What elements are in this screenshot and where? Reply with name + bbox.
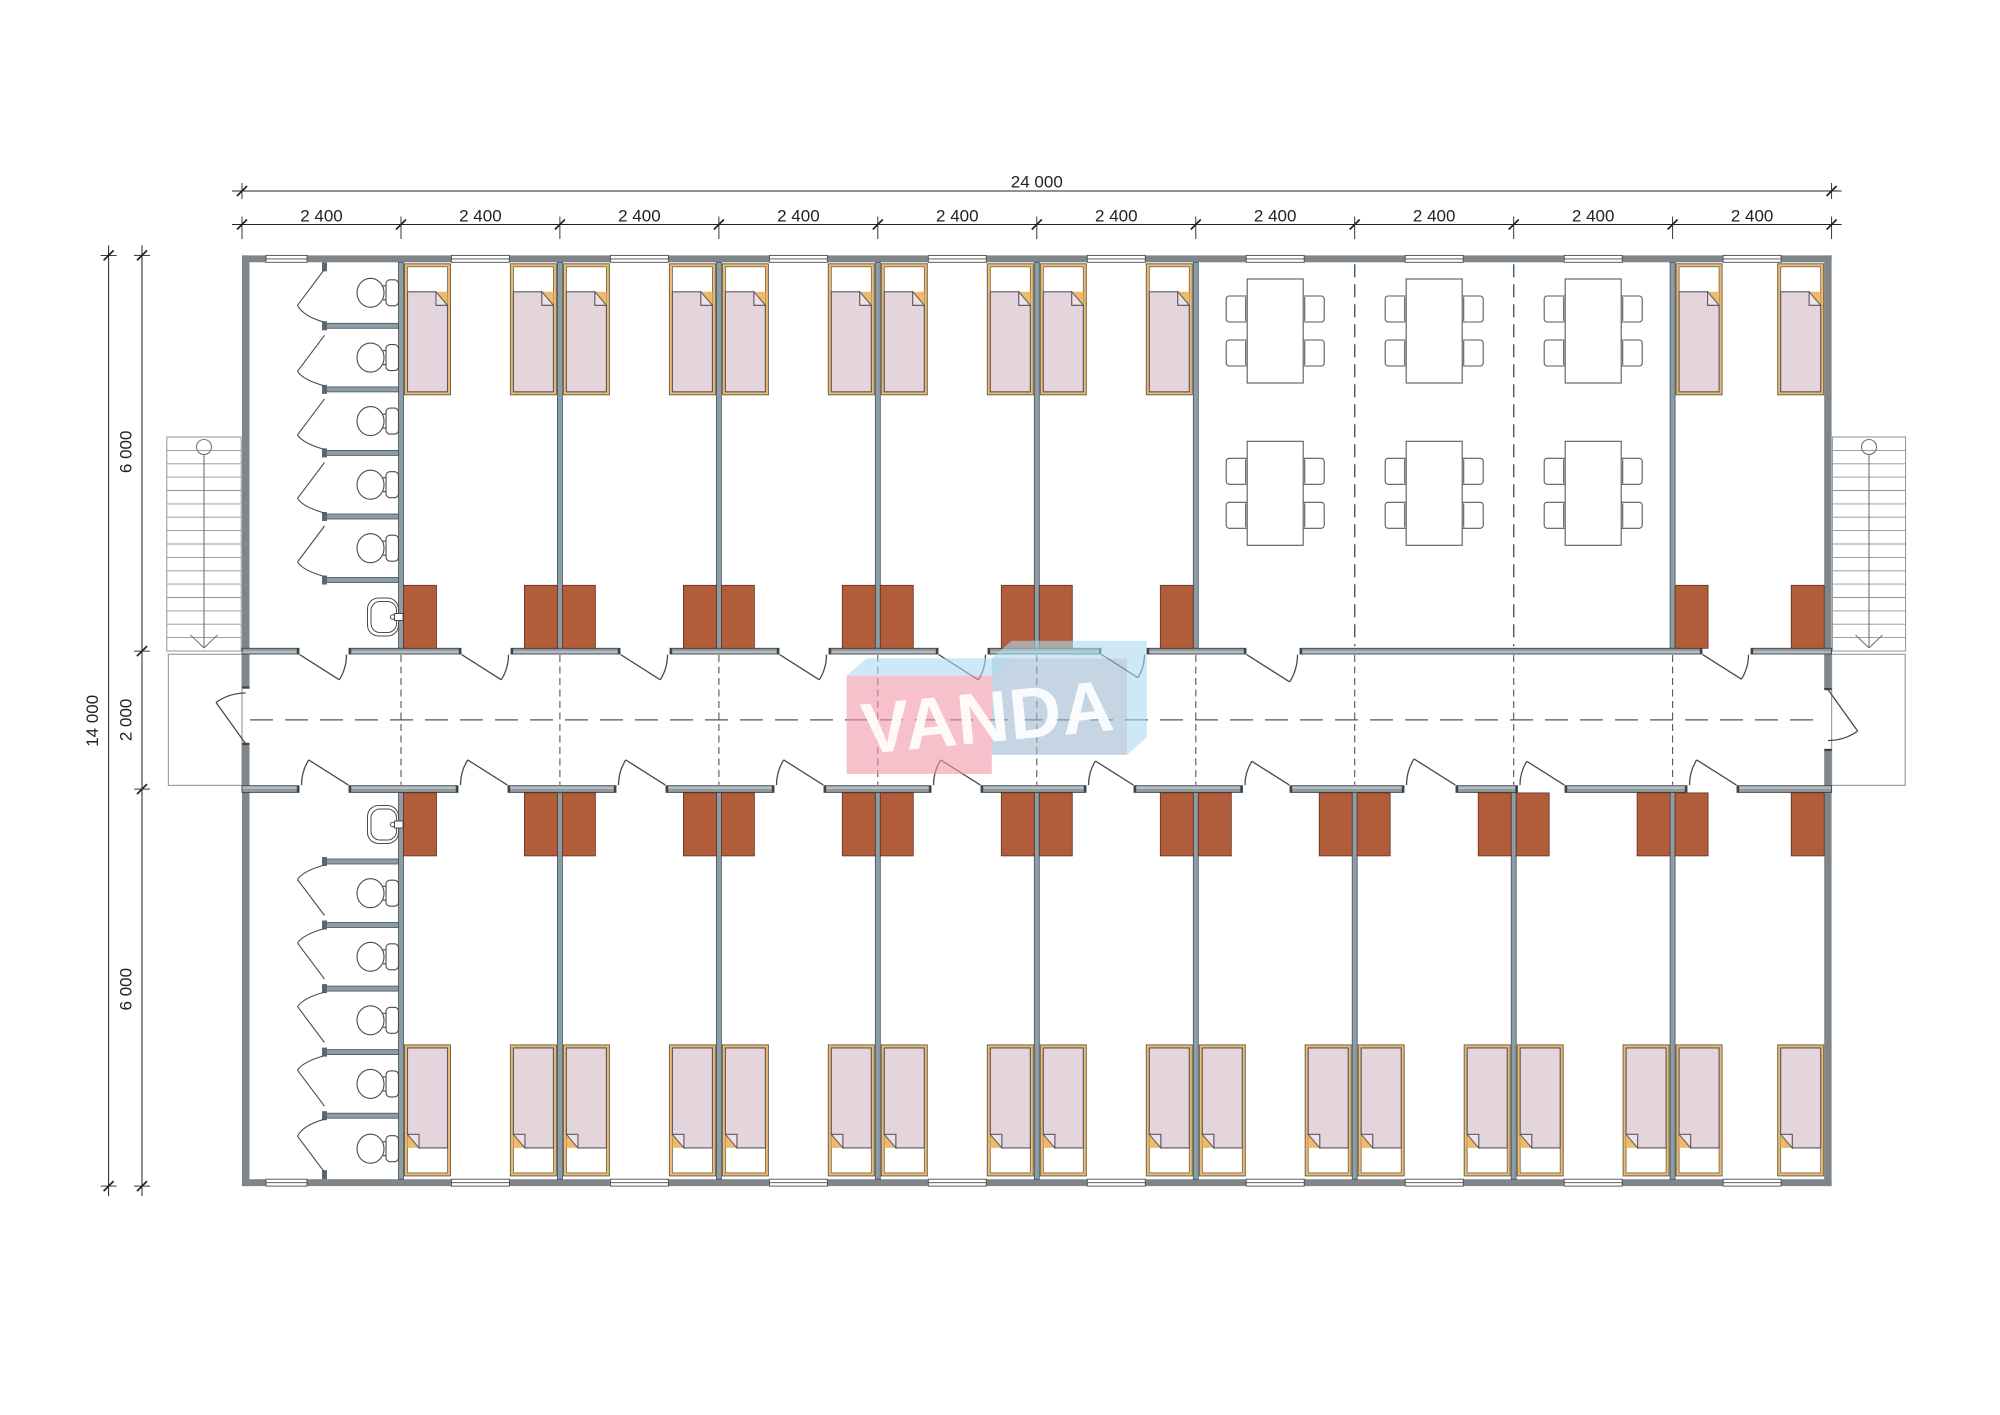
svg-text:2 400: 2 400 — [1731, 207, 1774, 226]
svg-text:2 400: 2 400 — [1254, 207, 1297, 226]
svg-text:6 000: 6 000 — [117, 968, 136, 1011]
svg-text:2 400: 2 400 — [459, 207, 502, 226]
svg-text:2 400: 2 400 — [1572, 207, 1615, 226]
svg-text:2 400: 2 400 — [1413, 207, 1456, 226]
svg-text:14 000: 14 000 — [83, 695, 102, 747]
svg-text:6 000: 6 000 — [117, 431, 136, 474]
svg-text:2 400: 2 400 — [777, 207, 820, 226]
svg-text:2 400: 2 400 — [300, 207, 343, 226]
svg-text:2 000: 2 000 — [117, 699, 136, 742]
svg-text:2 400: 2 400 — [1095, 207, 1138, 226]
svg-text:2 400: 2 400 — [936, 207, 979, 226]
svg-text:24 000: 24 000 — [1011, 173, 1063, 192]
svg-text:2 400: 2 400 — [618, 207, 661, 226]
